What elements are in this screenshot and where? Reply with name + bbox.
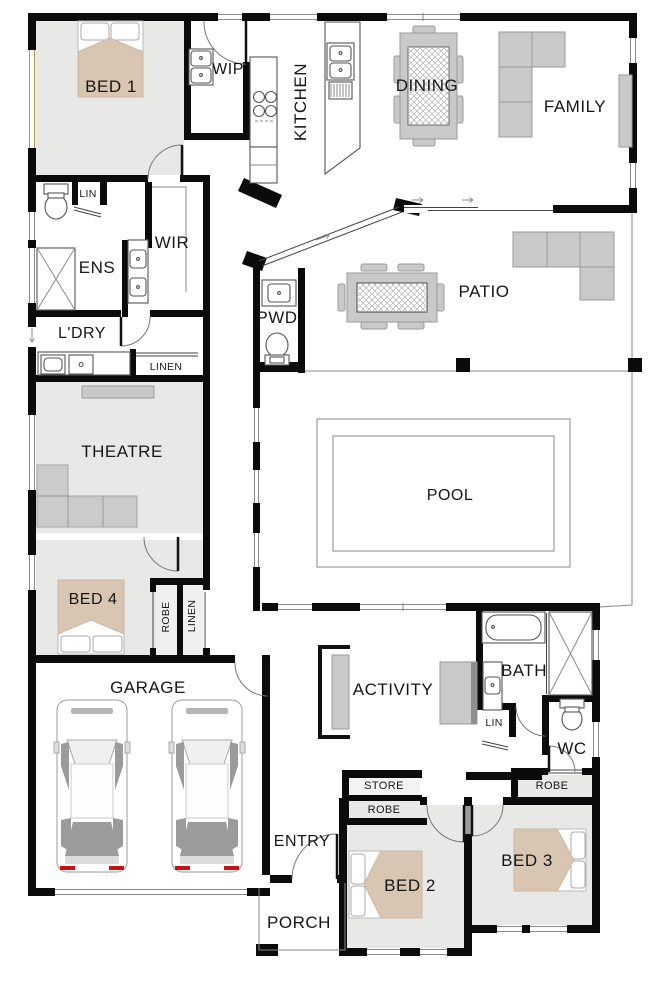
label-bed2: BED 2	[384, 876, 436, 896]
family-sofa	[499, 32, 565, 137]
label-linen-bed4: LINEN	[186, 600, 198, 632]
ldry-door	[121, 317, 150, 346]
bath-vanity	[483, 662, 502, 710]
wc-toilet	[560, 699, 584, 730]
label-dining: DINING	[396, 76, 459, 96]
bath-shower	[547, 612, 593, 695]
patio-sofa	[513, 232, 614, 300]
family-tv-unit	[619, 75, 632, 147]
label-bath: BATH	[501, 661, 547, 681]
label-wip: WIP	[212, 61, 244, 79]
activity-desk	[320, 647, 350, 737]
ens-vanity	[128, 240, 148, 303]
label-patio: PATIO	[459, 282, 510, 302]
label-robe-bed4: ROBE	[160, 602, 172, 633]
patio-table	[338, 264, 444, 329]
pwd-toilet	[265, 333, 289, 365]
label-entry: ENTRY	[274, 833, 330, 851]
bath-door	[516, 706, 546, 736]
kitchen-bench	[250, 57, 277, 183]
garage-car	[169, 700, 245, 872]
garage-car	[54, 700, 130, 872]
label-bed4: BED 4	[69, 591, 118, 609]
label-ldry: L'DRY	[58, 325, 106, 343]
label-store: STORE	[364, 780, 404, 792]
ens-shower	[37, 248, 75, 310]
bath-tub	[482, 612, 545, 643]
label-bed3: BED 3	[501, 851, 553, 871]
laundry-bench	[38, 352, 130, 375]
garage-door	[55, 888, 247, 896]
theatre-tv-unit	[82, 386, 154, 398]
label-pool: POOL	[427, 487, 473, 505]
cavity-slider-panel	[465, 806, 471, 834]
label-pwd: PWD	[256, 308, 297, 328]
label-wir: WIR	[155, 233, 190, 253]
floor-plan: BED 1 WIP KITCHEN DINING FAMILY LIN ENS …	[0, 0, 654, 1000]
label-robe-bed3: ROBE	[536, 780, 569, 792]
label-family: FAMILY	[544, 97, 606, 117]
label-ens: ENS	[79, 258, 115, 278]
label-robe-bed2: ROBE	[368, 804, 401, 816]
label-lin-bath: LIN	[485, 717, 502, 729]
patio-post	[456, 358, 470, 372]
laundry-door-arrow	[28, 327, 36, 347]
label-garage: GARAGE	[110, 678, 186, 698]
label-linen-hall: LINEN	[150, 361, 182, 373]
label-lin-ens: LIN	[79, 188, 96, 200]
pwd-vanity	[262, 280, 296, 306]
label-theatre: THEATRE	[81, 442, 163, 462]
kitchen-island	[325, 22, 360, 174]
angled-wall-jamb	[242, 251, 267, 271]
label-porch: PORCH	[267, 913, 331, 933]
patio-slider	[404, 198, 553, 214]
label-activity: ACTIVITY	[353, 680, 434, 700]
label-bed1: BED 1	[85, 77, 137, 97]
angled-slider	[259, 207, 402, 266]
patio-post	[628, 358, 642, 372]
activity-unit	[440, 662, 477, 724]
wip-sink	[189, 49, 213, 85]
label-wc: WC	[557, 739, 586, 759]
ens-toilet	[44, 184, 68, 219]
label-kitchen: KITCHEN	[291, 63, 311, 141]
